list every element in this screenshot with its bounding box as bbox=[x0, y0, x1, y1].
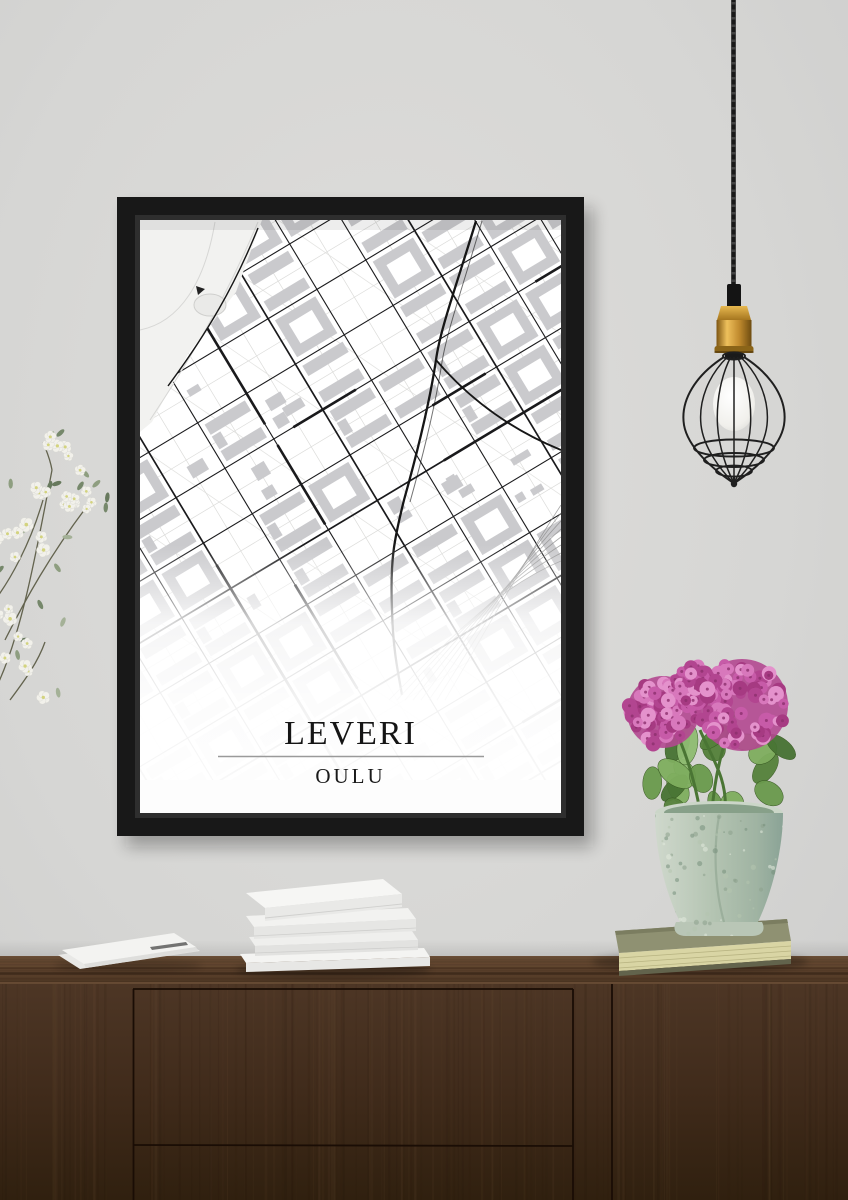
sideboard bbox=[0, 956, 848, 1200]
white-book-stack bbox=[235, 879, 431, 978]
room-scene: LEVERI OULU bbox=[0, 0, 848, 1200]
sideboard-front bbox=[0, 984, 848, 1200]
poster-subtitle: OULU bbox=[315, 764, 385, 788]
poster-title: LEVERI bbox=[284, 715, 417, 752]
poster-inner-shade bbox=[140, 220, 561, 230]
